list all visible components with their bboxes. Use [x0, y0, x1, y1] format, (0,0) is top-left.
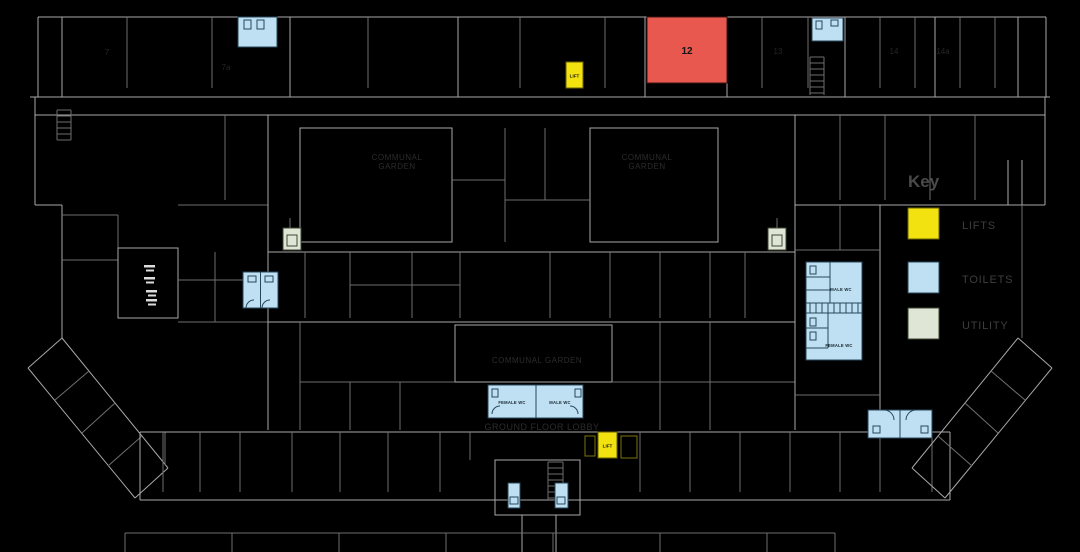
lift-top: LIFT: [566, 62, 583, 88]
male-wc-label: MALE WC: [549, 400, 570, 405]
rack-marker-icon: [148, 304, 156, 306]
legend-swatch-utility: [908, 308, 939, 339]
floor-plan-canvas: 12 LIFT LIFT FEMALE WC MALE WC: [0, 0, 1080, 552]
legend-label-utility: UTILITY: [962, 320, 1009, 332]
communal-garden-right-line2: GARDEN: [628, 162, 665, 171]
female-wc-label: FEMALE WC: [498, 400, 525, 405]
lift-bottom-label: LIFT: [603, 444, 613, 449]
room-number-7a: 7a: [222, 63, 231, 72]
legend: Key LIFTS TOILETS UTILITY: [908, 172, 1013, 339]
rack-marker-icon: [146, 290, 157, 293]
legend-swatch-lifts: [908, 208, 939, 239]
room-numbers: 7 7a 13 14 14a: [105, 47, 950, 72]
rack-marker-icons: [144, 265, 157, 306]
female-wc-label: FEMALE WC: [825, 343, 852, 348]
rack-marker-icon: [146, 282, 154, 284]
communal-garden-left-line1: COMMUNAL: [372, 153, 423, 162]
room-number-14a: 14a: [936, 47, 950, 56]
rack-marker-icon: [146, 299, 157, 302]
toilet-central-block: FEMALE WC MALE WC: [488, 385, 583, 418]
lift-shaft-outline-right: [621, 436, 637, 458]
legend-title: Key: [908, 172, 940, 191]
walls: [28, 17, 1052, 552]
room-12: 12: [647, 17, 727, 83]
room-number-7: 7: [105, 48, 110, 57]
floor-plan-viewer: 12 LIFT LIFT FEMALE WC MALE WC: [0, 0, 1080, 552]
stairs-top-right: [810, 57, 824, 95]
room-12-number: 12: [681, 46, 693, 57]
utility-left-fill: [283, 228, 301, 250]
utility-right: [768, 218, 786, 250]
toilet-right-block: MALE WC FEMALE WC: [806, 262, 862, 360]
legend-label-toilets: TOILETS: [962, 274, 1013, 286]
toilet-mid-left-pair: [243, 272, 278, 308]
rack-marker-icon: [144, 265, 155, 268]
toilet-bottom-right-pair: [868, 410, 932, 438]
toilet-top-right: [812, 18, 843, 41]
toilet-entrance-cells: [508, 483, 568, 508]
room-number-14: 14: [890, 47, 899, 56]
utility-left: [283, 218, 301, 250]
ground-floor-lobby-label: GROUND FLOOR LOBBY: [484, 422, 599, 432]
legend-swatch-toilets: [908, 262, 939, 293]
communal-garden-left-line2: GARDEN: [378, 162, 415, 171]
communal-garden-center: COMMUNAL GARDEN: [492, 356, 582, 365]
toilet-top-left: [238, 17, 277, 47]
male-wc-label: MALE WC: [830, 287, 851, 292]
rack-marker-icon: [148, 295, 156, 297]
utility-right-fill: [768, 228, 786, 250]
communal-garden-right-line1: COMMUNAL: [622, 153, 673, 162]
legend-label-lifts: LIFTS: [962, 220, 996, 232]
lift-shaft-outline-left: [585, 436, 595, 456]
rack-marker-icon: [146, 270, 154, 272]
lift-top-label: LIFT: [570, 74, 580, 79]
lift-bottom: LIFT: [585, 432, 637, 458]
rack-marker-icon: [144, 277, 155, 280]
room-number-13: 13: [774, 47, 783, 56]
